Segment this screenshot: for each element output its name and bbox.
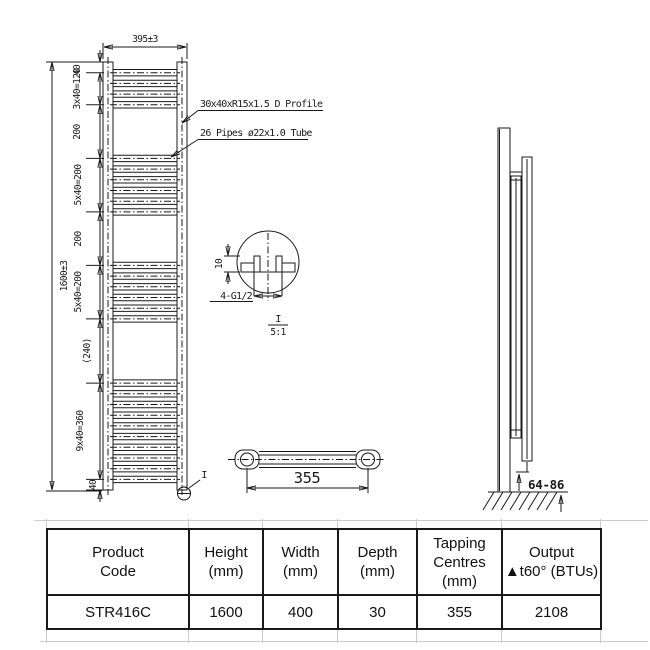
cell-width: 400 — [263, 595, 338, 629]
header-tapping-centres: TappingCentres(mm) — [417, 529, 502, 595]
detail-ref-label: I — [201, 470, 207, 481]
thread-label: 4-G1/2 — [220, 291, 253, 302]
excel-gridline — [40, 641, 648, 642]
seg-label: (240) — [82, 338, 93, 364]
seg-label: 3x40=120 — [72, 68, 83, 110]
hatch-line — [510, 492, 521, 510]
front-view: I — [103, 57, 207, 500]
bushing-wall-right — [276, 256, 282, 272]
seg-label: 200 — [73, 230, 84, 246]
cell-output: 2108 — [502, 595, 601, 629]
cell-product-code: STR416C — [47, 595, 189, 629]
header-height: Height(mm) — [189, 529, 263, 595]
detail-view: 10 4-G1/2 I 5:1 — [210, 231, 299, 338]
header-width: Width(mm) — [263, 529, 338, 595]
header-depth: Depth(mm) — [338, 529, 417, 595]
hatch-line — [492, 492, 503, 510]
tube-group — [110, 70, 180, 483]
hatch-line — [501, 492, 512, 510]
cell-depth: 30 — [338, 595, 417, 629]
bracket-view: 355 — [228, 450, 386, 493]
seg-label: 40 — [88, 479, 99, 490]
header-output: Output▲t60° (BTUs) — [502, 529, 601, 595]
height-dim-label: 1600±3 — [59, 261, 70, 292]
chain-dimension — [86, 50, 104, 502]
callouts: 30x40xR15x1.5 D Profile 26 Pipes ø22x1.0… — [171, 99, 323, 157]
bushing-wall-left — [254, 256, 260, 272]
table-data-row: STR416C 1600 400 30 355 2108 — [47, 595, 601, 629]
hatch-line — [528, 492, 539, 510]
centres-dim-label: 355 — [294, 469, 321, 487]
cell-tapping-centres: 355 — [417, 595, 502, 629]
hatch-line — [483, 492, 494, 510]
leader-line — [182, 111, 198, 124]
table-header-row: ProductCode Height(mm) Width(mm) Depth(m… — [47, 529, 601, 595]
pipes-callout-label: 26 Pipes ø22x1.0 Tube — [200, 128, 312, 139]
seg-label: 9x40=360 — [75, 410, 86, 452]
detail-id-label: I — [275, 314, 281, 325]
detail-leader-line — [189, 480, 200, 488]
seg-label: 200 — [72, 123, 83, 139]
section-wall-right — [282, 263, 295, 272]
floor-gap-label: 64-86 — [528, 477, 564, 492]
width-dim-label: 395±3 — [132, 34, 158, 45]
leader-line — [171, 140, 198, 158]
excel-gridline — [34, 520, 648, 521]
detail-scale-label: 5:1 — [270, 327, 286, 338]
cell-height: 1600 — [189, 595, 263, 629]
technical-drawing: I 395±3 1600±3 40 3x40=120 200 5x40=200 … — [0, 0, 650, 520]
front-dimensions: 395±3 1600±3 40 3x40=120 200 5x40=200 20… — [46, 34, 187, 502]
hatch-line — [537, 492, 548, 510]
profile-callout-label: 30x40xR15x1.5 D Profile — [200, 99, 323, 110]
hatch-line — [519, 492, 530, 510]
detail-height-label: 10 — [214, 258, 225, 269]
floor-hatch — [483, 492, 557, 510]
section-wall-left — [241, 263, 254, 272]
side-view: 64-86 — [483, 128, 568, 512]
seg-label: 5x40=200 — [73, 271, 84, 313]
spec-table: ProductCode Height(mm) Width(mm) Depth(m… — [46, 528, 602, 630]
hatch-line — [546, 492, 557, 510]
seg-label: 5x40=200 — [73, 164, 84, 206]
header-product-code: ProductCode — [47, 529, 189, 595]
